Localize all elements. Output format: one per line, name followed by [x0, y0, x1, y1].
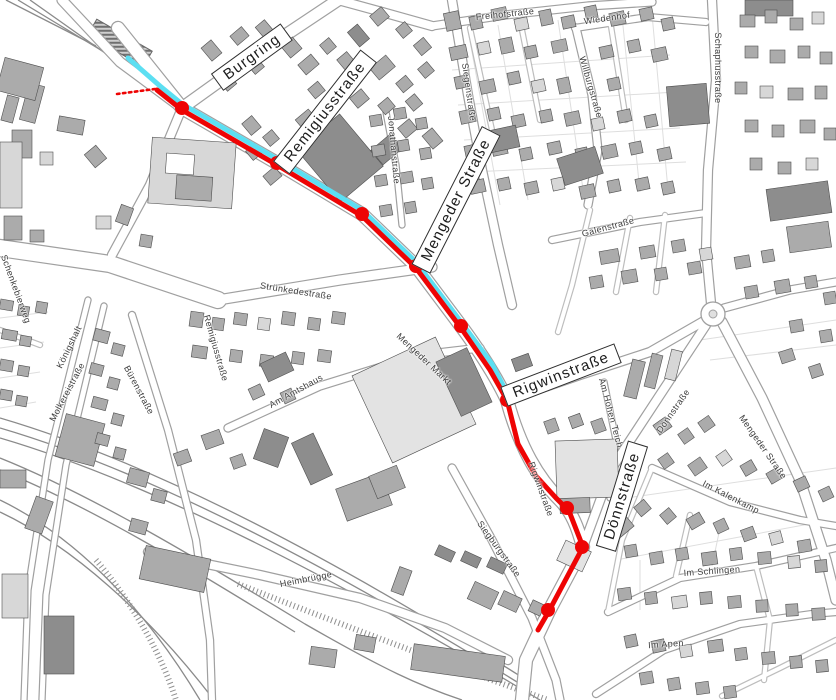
building: [544, 418, 560, 434]
building: [798, 46, 810, 58]
building: [649, 551, 664, 565]
building: [464, 144, 479, 158]
building: [687, 261, 702, 275]
building: [707, 639, 724, 653]
building: [418, 62, 435, 79]
building: [4, 216, 22, 240]
building: [797, 539, 812, 553]
building: [298, 54, 319, 75]
building: [499, 37, 515, 54]
building: [242, 116, 262, 136]
building: [667, 677, 681, 691]
building: [96, 216, 111, 229]
building: [551, 177, 565, 191]
building: [469, 15, 483, 30]
building: [229, 349, 243, 363]
building: [111, 413, 124, 426]
building: [514, 17, 529, 31]
building: [469, 179, 486, 195]
building: [396, 75, 414, 93]
building: [786, 604, 799, 617]
building: [607, 77, 621, 91]
building: [591, 117, 605, 131]
building: [651, 639, 666, 653]
building: [607, 179, 621, 193]
building: [789, 319, 804, 333]
building: [788, 88, 803, 100]
building: [1, 329, 18, 341]
building: [331, 311, 346, 325]
building: [658, 453, 675, 470]
building: [487, 107, 501, 121]
building: [291, 433, 332, 485]
building: [716, 450, 733, 467]
building: [539, 109, 553, 123]
building: [113, 447, 126, 460]
building: [421, 177, 434, 190]
building: [35, 301, 48, 314]
building: [678, 428, 695, 445]
building: [317, 349, 332, 363]
building: [671, 239, 686, 253]
building: [0, 142, 22, 208]
building: [253, 429, 288, 468]
building: [15, 395, 28, 407]
building: [787, 555, 800, 568]
map-svg: [0, 0, 836, 700]
building: [201, 429, 224, 450]
building: [370, 55, 396, 80]
building: [713, 518, 729, 534]
building: [497, 177, 511, 191]
building: [398, 119, 418, 139]
building: [675, 547, 689, 561]
building: [547, 141, 562, 155]
building: [819, 329, 833, 343]
building: [671, 595, 688, 609]
building: [233, 312, 248, 326]
building: [524, 181, 539, 195]
building: [740, 460, 757, 477]
building: [393, 107, 407, 120]
building: [413, 37, 431, 55]
building: [770, 50, 785, 63]
building: [584, 5, 598, 19]
building: [519, 147, 533, 161]
route-stop-marker: [454, 319, 468, 333]
building: [391, 567, 412, 596]
building: [561, 15, 576, 29]
building: [653, 417, 672, 435]
building: [379, 204, 393, 217]
building: [107, 377, 120, 390]
building: [818, 486, 834, 502]
building: [378, 97, 396, 115]
building: [337, 52, 357, 72]
building: [789, 655, 802, 668]
building: [201, 40, 222, 61]
building: [815, 659, 828, 672]
building: [815, 86, 827, 99]
building: [263, 130, 280, 147]
building: [531, 79, 546, 93]
building: [564, 111, 581, 127]
building: [814, 559, 827, 572]
building: [688, 457, 708, 476]
building: [765, 10, 777, 23]
building: [806, 158, 818, 170]
building: [766, 181, 832, 221]
building: [758, 551, 772, 564]
building: [511, 353, 532, 371]
building: [629, 141, 643, 155]
building: [557, 77, 572, 94]
building: [824, 128, 836, 140]
building: [230, 454, 246, 470]
building: [617, 587, 632, 601]
building: [740, 15, 755, 27]
map-canvas[interactable]: BurgringRemigiusstraßeMengeder StraßeRig…: [0, 0, 836, 700]
building: [139, 234, 153, 248]
building: [698, 415, 716, 432]
building: [129, 518, 149, 535]
building: [419, 147, 432, 160]
building: [191, 345, 208, 359]
building: [435, 545, 456, 563]
building: [772, 125, 784, 137]
building: [175, 175, 213, 201]
building: [30, 230, 44, 242]
building: [17, 305, 30, 317]
building: [374, 174, 388, 187]
building: [415, 117, 428, 130]
building: [740, 526, 756, 542]
building: [812, 608, 826, 621]
building: [2, 574, 28, 618]
building: [729, 547, 743, 561]
building: [624, 634, 638, 648]
building: [745, 120, 758, 132]
building: [644, 114, 658, 128]
building: [728, 595, 742, 608]
building: [399, 171, 414, 184]
building: [723, 685, 737, 699]
building: [57, 116, 85, 135]
building: [699, 591, 712, 604]
building: [644, 353, 663, 389]
building: [599, 45, 614, 59]
building: [661, 17, 675, 31]
building: [308, 81, 326, 99]
building: [808, 363, 823, 378]
building: [291, 351, 305, 365]
building: [281, 311, 296, 326]
building: [820, 52, 832, 64]
building: [507, 71, 521, 85]
route-stop-marker: [409, 259, 423, 273]
building: [823, 291, 836, 305]
building: [230, 27, 249, 46]
building: [1, 95, 19, 123]
building: [467, 581, 499, 609]
route-stop-marker: [560, 501, 574, 515]
route-stop-marker: [270, 156, 284, 170]
building: [790, 18, 803, 30]
building: [766, 468, 782, 484]
route-stop-marker: [500, 393, 514, 407]
building: [591, 418, 607, 434]
building: [639, 245, 656, 259]
building: [477, 41, 491, 55]
building: [397, 139, 410, 152]
building: [657, 147, 672, 161]
building: [309, 646, 337, 667]
route-stop-marker: [175, 101, 189, 115]
route-stop-marker: [355, 207, 369, 221]
building: [599, 248, 620, 264]
building: [211, 317, 225, 331]
building: [654, 267, 668, 281]
building: [551, 39, 568, 54]
building: [679, 644, 693, 658]
building: [804, 275, 818, 289]
building: [461, 551, 482, 569]
route-dashed-tail: [117, 89, 155, 94]
building: [350, 89, 370, 109]
building: [248, 384, 265, 400]
building: [524, 45, 538, 59]
building: [756, 600, 769, 613]
building: [91, 396, 108, 411]
building: [760, 86, 773, 98]
building: [19, 335, 32, 347]
building: [589, 275, 604, 289]
building: [769, 531, 784, 546]
building: [734, 647, 748, 661]
building: [635, 177, 650, 191]
building: [579, 184, 596, 200]
building: [800, 120, 815, 133]
building: [354, 634, 376, 652]
building: [750, 158, 762, 170]
building: [257, 317, 271, 331]
building: [734, 255, 751, 269]
building: [639, 7, 654, 21]
building: [699, 247, 713, 261]
building: [786, 221, 831, 253]
building: [347, 24, 369, 47]
building: [735, 82, 747, 94]
building: [666, 83, 709, 126]
building: [639, 671, 654, 685]
building: [454, 75, 469, 89]
building: [774, 279, 791, 294]
building: [761, 249, 775, 263]
building: [812, 12, 824, 24]
building: [651, 47, 668, 63]
building: [189, 311, 204, 328]
building: [744, 285, 759, 299]
building: [307, 317, 321, 331]
building: [624, 544, 638, 558]
building: [371, 144, 386, 157]
building: [601, 144, 618, 160]
building: [555, 439, 619, 499]
building: [255, 20, 273, 38]
building: [778, 162, 791, 174]
building: [762, 651, 776, 664]
building: [661, 181, 675, 195]
building: [404, 201, 417, 214]
building: [459, 109, 476, 125]
building: [0, 359, 14, 372]
route-stop-marker: [575, 540, 589, 554]
building: [627, 39, 641, 53]
building: [701, 551, 718, 566]
building: [320, 38, 337, 55]
building: [17, 365, 30, 377]
building: [405, 94, 423, 112]
building: [695, 681, 710, 695]
building: [621, 269, 638, 284]
building: [422, 128, 443, 149]
building: [40, 152, 53, 165]
building: [745, 46, 758, 58]
building: [609, 11, 626, 27]
building: [44, 616, 74, 674]
building: [660, 508, 677, 525]
building: [84, 145, 106, 168]
building: [0, 470, 26, 488]
building: [644, 591, 658, 605]
building: [111, 343, 125, 357]
building: [617, 109, 632, 123]
building: [568, 413, 583, 428]
route-stop-marker: [541, 603, 555, 617]
building: [369, 114, 383, 127]
building: [479, 79, 496, 95]
building: [0, 389, 13, 401]
building: [0, 299, 14, 311]
